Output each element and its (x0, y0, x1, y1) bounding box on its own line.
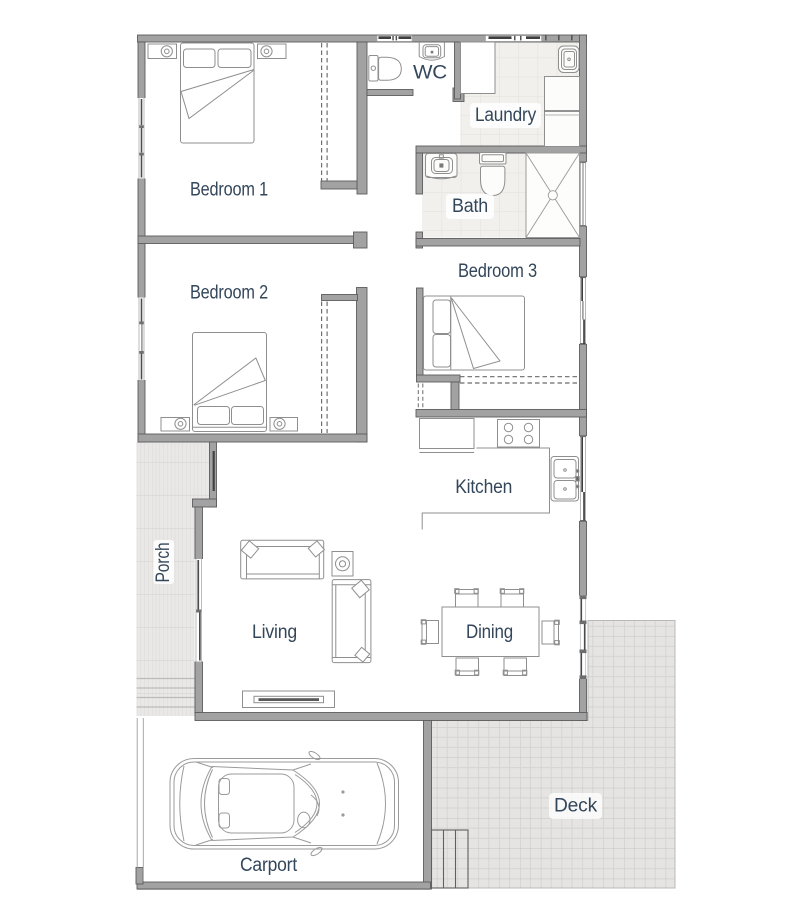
svg-text:Carport: Carport (240, 855, 298, 876)
svg-text:Porch: Porch (153, 543, 174, 583)
svg-text:Laundry: Laundry (475, 105, 537, 126)
svg-text:Living: Living (252, 622, 297, 643)
svg-text:Bedroom 2: Bedroom 2 (190, 283, 268, 304)
svg-text:Bath: Bath (452, 196, 488, 217)
svg-text:Dining: Dining (466, 622, 513, 643)
svg-text:WC: WC (413, 63, 447, 84)
svg-text:Deck: Deck (554, 796, 598, 817)
svg-text:Bedroom 3: Bedroom 3 (458, 261, 537, 282)
svg-text:Kitchen: Kitchen (455, 477, 512, 498)
svg-text:Bedroom 1: Bedroom 1 (190, 180, 268, 201)
